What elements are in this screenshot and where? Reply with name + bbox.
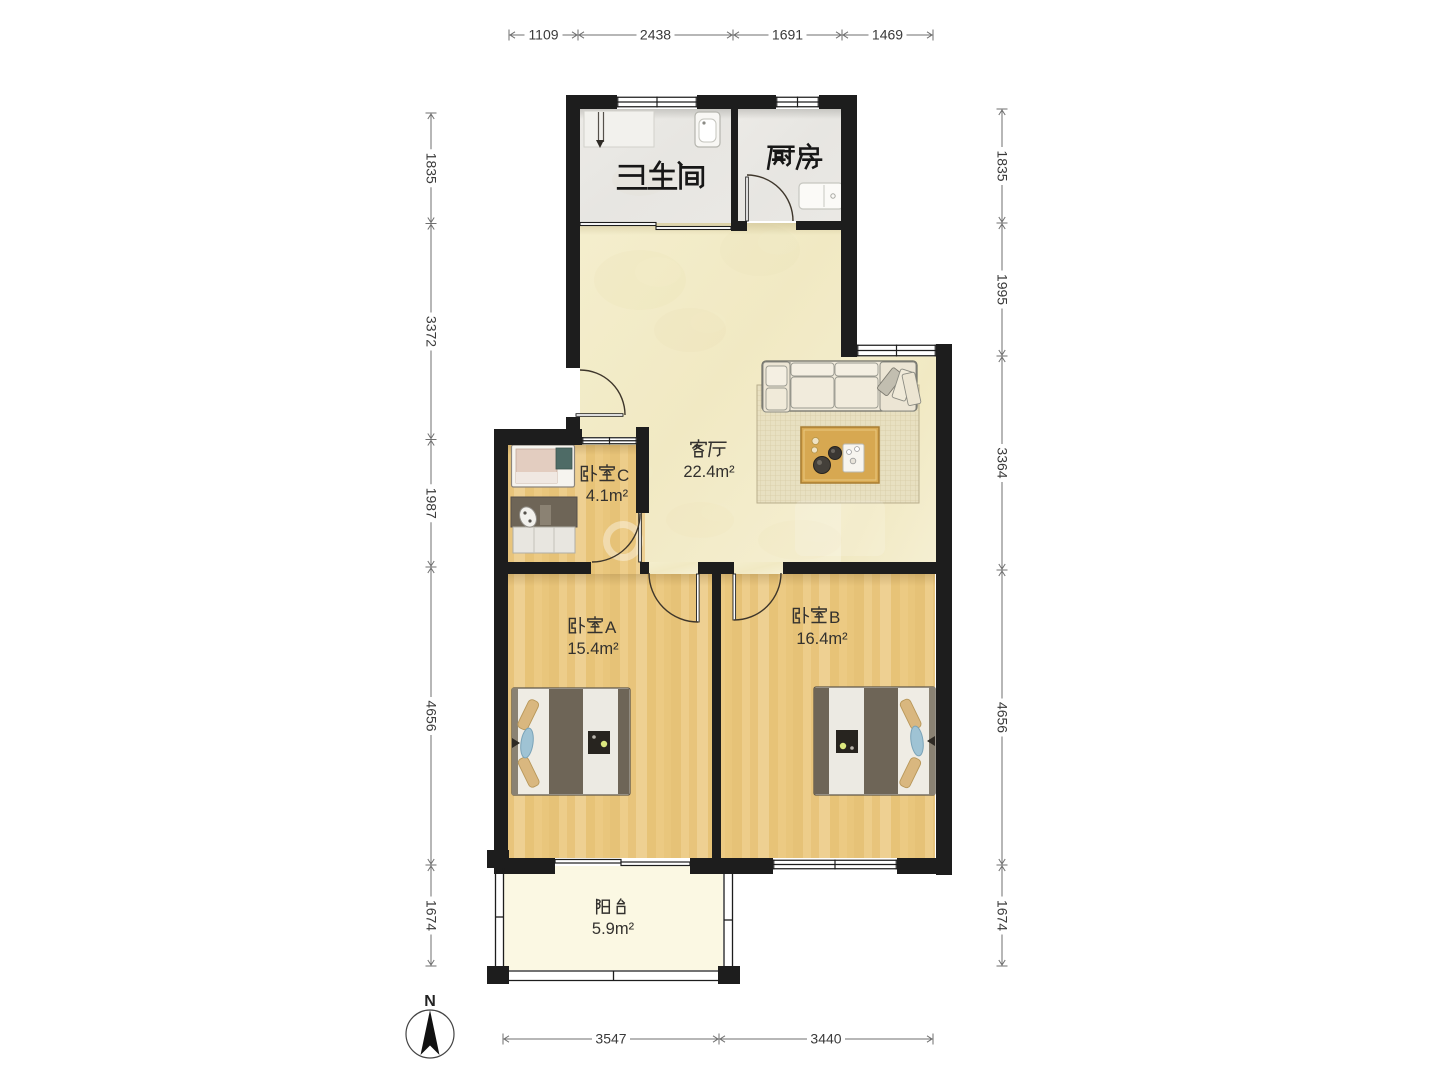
svg-text:B: B [829, 608, 840, 627]
svg-text:1674: 1674 [995, 900, 1011, 931]
svg-text:4.1m²: 4.1m² [586, 487, 629, 505]
svg-text:C: C [617, 466, 629, 485]
svg-text:2438: 2438 [640, 27, 671, 43]
svg-text:1987: 1987 [424, 488, 440, 519]
svg-text:5.9m²: 5.9m² [592, 920, 635, 938]
svg-text:3440: 3440 [810, 1031, 841, 1047]
svg-text:4656: 4656 [995, 702, 1011, 733]
svg-text:4656: 4656 [424, 700, 440, 731]
svg-text:3364: 3364 [995, 447, 1011, 478]
svg-text:1835: 1835 [995, 150, 1011, 181]
svg-text:1674: 1674 [424, 900, 440, 931]
svg-text:3547: 3547 [595, 1031, 626, 1047]
svg-text:1109: 1109 [528, 27, 558, 43]
svg-text:1835: 1835 [424, 153, 440, 184]
svg-text:N: N [424, 993, 436, 1010]
svg-text:3372: 3372 [424, 316, 440, 347]
svg-text:A: A [605, 618, 617, 637]
svg-text:15.4m²: 15.4m² [567, 640, 619, 658]
svg-text:22.4m²: 22.4m² [683, 463, 735, 481]
svg-text:1469: 1469 [872, 27, 903, 43]
svg-text:1691: 1691 [772, 27, 803, 43]
svg-text:1995: 1995 [995, 274, 1011, 305]
svg-text:16.4m²: 16.4m² [796, 630, 848, 648]
